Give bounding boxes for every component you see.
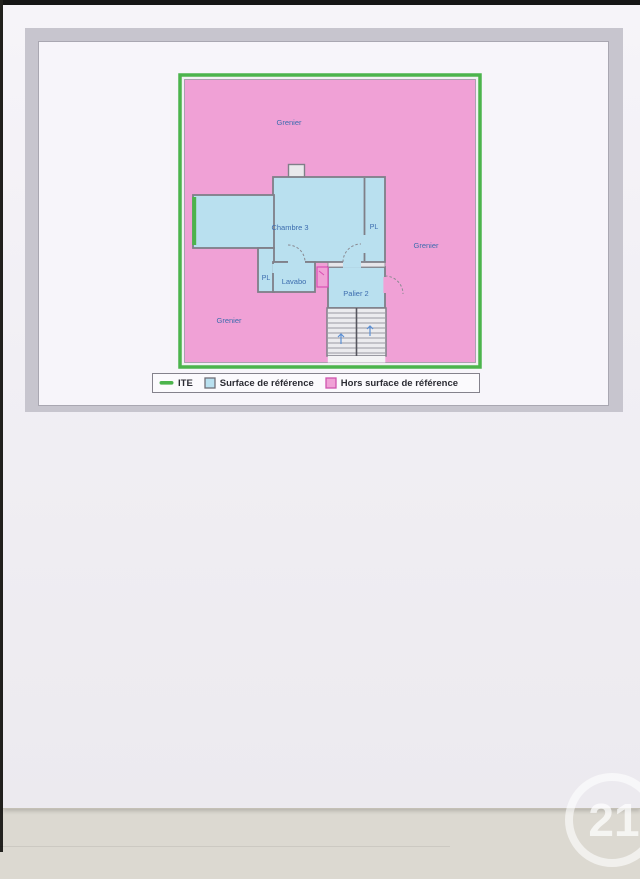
room-chambre3-wing: [193, 195, 274, 248]
scanned-floor-plan-page: 2ème Etage: [0, 0, 640, 879]
ite-wall-strip: [192, 197, 196, 245]
label-grenier-top: Grenier: [276, 118, 302, 127]
legend-label-ite: ITE: [178, 378, 193, 389]
label-palier2: Palier 2: [343, 289, 368, 298]
label-grenier-right: Grenier: [413, 241, 439, 250]
century21-logo-icon: 21: [560, 770, 640, 872]
door-gap-pl: [272, 264, 275, 273]
stairs-landing-edge: [328, 356, 386, 363]
label-lavabo: Lavabo: [282, 277, 307, 286]
legend-surface-swatch-icon: [204, 377, 216, 389]
room-placard-lower: [258, 248, 274, 292]
watermark-21-text: 21: [588, 794, 639, 846]
door-gap-grenier: [383, 277, 386, 293]
label-chambre3: Chambre 3: [271, 223, 308, 232]
chimney-block: [289, 165, 305, 178]
legend: ITE Surface de référence Hors surface de…: [152, 373, 480, 393]
label-pl-right: PL: [370, 224, 379, 231]
legend-label-surface: Surface de référence: [220, 378, 314, 389]
century21-watermark: 21: [560, 770, 640, 872]
label-grenier-bottom: Grenier: [216, 316, 242, 325]
legend-ite-line-icon: [159, 380, 174, 386]
label-pl-lower: PL: [262, 275, 271, 282]
door-gap-lavabo: [288, 260, 305, 263]
room-palier2: [328, 267, 385, 308]
surface-shadow-line: [0, 846, 450, 847]
legend-label-hors-surface: Hors surface de référence: [341, 378, 458, 389]
staircase: [327, 308, 386, 363]
duct-hors-surface: [317, 267, 328, 287]
floor-plan-drawing: Grenier Grenier Grenier Chambre 3 PL PL …: [178, 73, 482, 369]
legend-hors-surface-swatch-icon: [325, 377, 337, 389]
door-gap-palier: [343, 260, 361, 268]
room-chambre3-main: [273, 177, 385, 262]
